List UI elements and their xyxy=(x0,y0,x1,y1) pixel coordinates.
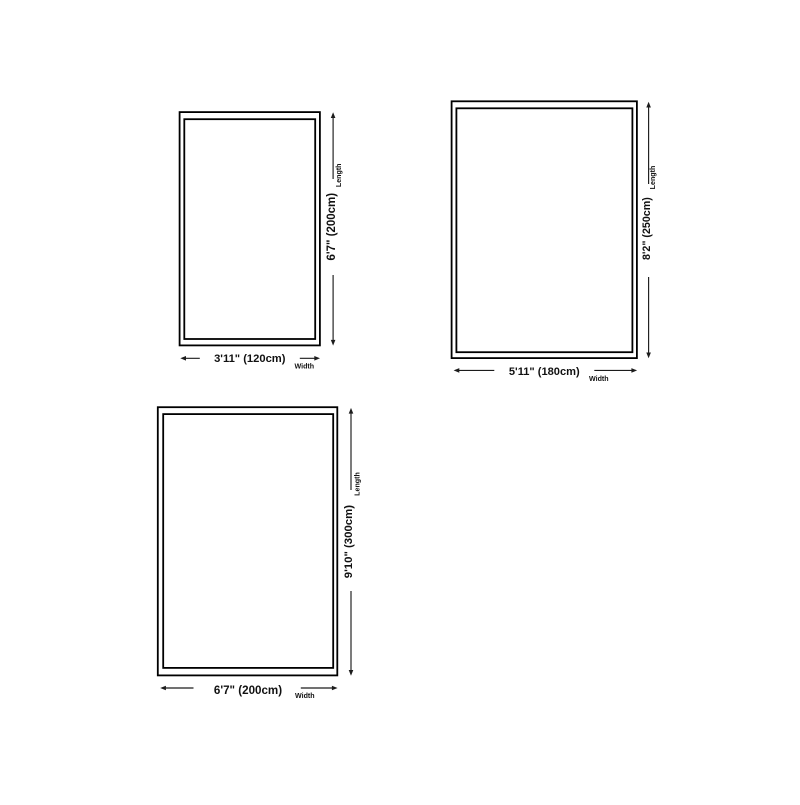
svg-text:Width: Width xyxy=(295,692,315,700)
svg-text:3'11" (120cm): 3'11" (120cm) xyxy=(214,353,286,365)
svg-text:5'11" (180cm): 5'11" (180cm) xyxy=(509,366,580,378)
svg-text:6'7" (200cm): 6'7" (200cm) xyxy=(214,684,282,697)
svg-text:Width: Width xyxy=(295,362,315,370)
svg-text:Length: Length xyxy=(354,472,362,496)
svg-text:Length: Length xyxy=(335,163,343,187)
svg-text:6'7" (200cm): 6'7" (200cm) xyxy=(326,193,338,261)
svg-text:9'10" (300cm): 9'10" (300cm) xyxy=(343,505,355,578)
svg-text:Width: Width xyxy=(589,375,609,383)
svg-text:Length: Length xyxy=(649,166,657,190)
svg-text:8'2" (250cm): 8'2" (250cm) xyxy=(641,197,653,260)
